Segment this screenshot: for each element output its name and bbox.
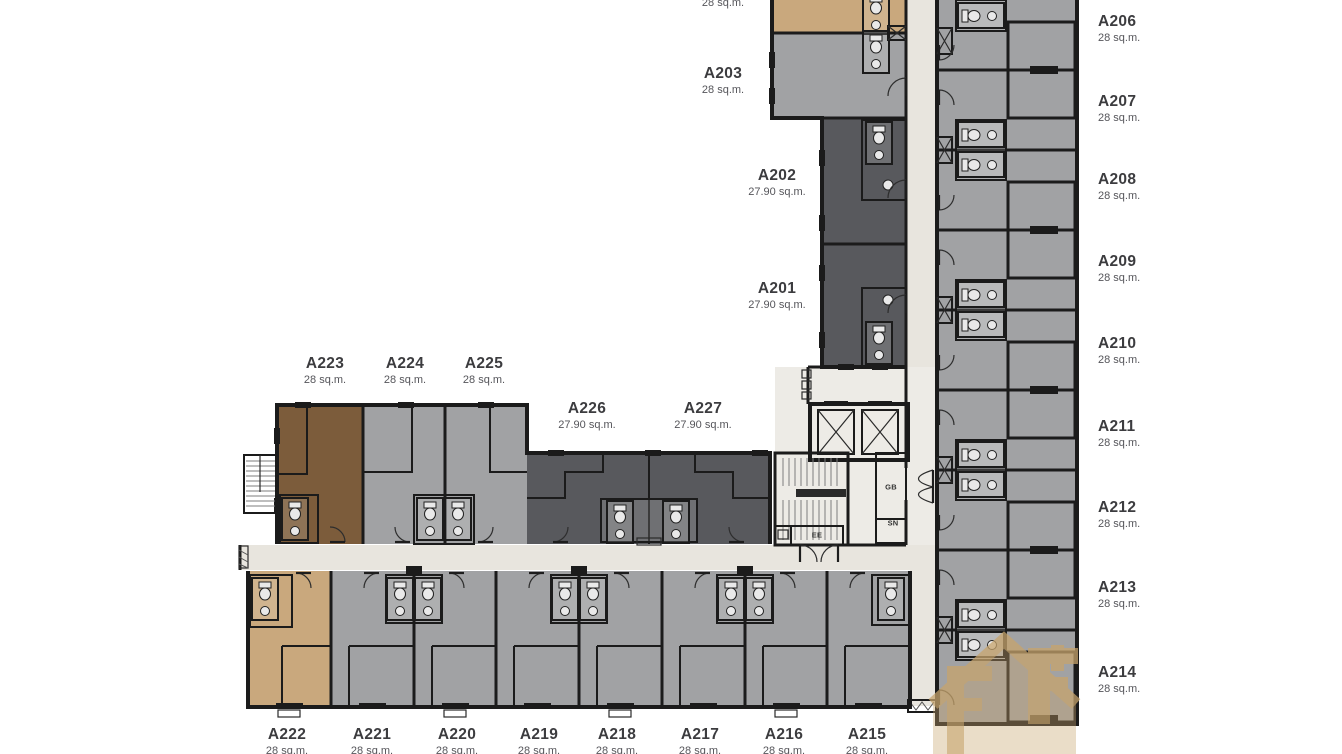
unit-label-a218: A218 28 sq.m.: [596, 727, 638, 754]
unit-label-a219: A219 28 sq.m.: [518, 727, 560, 754]
unit-label-a201: A201 27.90 sq.m.: [748, 281, 805, 312]
unit-label-partial: 28 sq.m.: [702, 0, 744, 10]
unit-label-a221: A221 28 sq.m.: [351, 727, 393, 754]
floor-plan-drawing: [0, 0, 1342, 754]
bottom-row-units: [248, 566, 910, 717]
exterior-stair: [244, 455, 277, 513]
unit-label-a215: A215 28 sq.m.: [846, 727, 888, 754]
unit-label-a208: A208 28 sq.m.: [1098, 172, 1140, 203]
unit-label-a202: A202 27.90 sq.m.: [748, 168, 805, 199]
core-label-sn: SN: [888, 519, 899, 528]
unit-label-a216: A216 28 sq.m.: [763, 727, 805, 754]
floor-plan: 28 sq.m. A203 28 sq.m. A202 27.90 sq.m. …: [0, 0, 1342, 754]
unit-label-a227: A227 27.90 sq.m.: [674, 401, 731, 432]
unit-label-a209: A209 28 sq.m.: [1098, 254, 1140, 285]
unit-label-a225: A225 28 sq.m.: [463, 356, 505, 387]
right-wing-units: [937, 0, 1077, 724]
unit-label-a212: A212 28 sq.m.: [1098, 500, 1140, 531]
core-label-gb: GB: [885, 483, 897, 492]
unit-label-a226: A226 27.90 sq.m.: [558, 401, 615, 432]
unit-label-a210: A210 28 sq.m.: [1098, 336, 1140, 367]
unit-label-a214: A214 28 sq.m.: [1098, 665, 1140, 696]
unit-label-a222: A222 28 sq.m.: [266, 727, 308, 754]
core-label-ee: EE: [812, 531, 822, 540]
unit-label-a206: A206 28 sq.m.: [1098, 14, 1140, 45]
unit-label-a217: A217 28 sq.m.: [679, 727, 721, 754]
unit-label-a224: A224 28 sq.m.: [384, 356, 426, 387]
unit-label-a207: A207 28 sq.m.: [1098, 94, 1140, 125]
unit-label-a203: A203 28 sq.m.: [702, 66, 744, 97]
unit-label-a223: A223 28 sq.m.: [304, 356, 346, 387]
unit-label-a213: A213 28 sq.m.: [1098, 580, 1140, 611]
unit-label-a211: A211 28 sq.m.: [1098, 419, 1140, 450]
unit-label-a220: A220 28 sq.m.: [436, 727, 478, 754]
